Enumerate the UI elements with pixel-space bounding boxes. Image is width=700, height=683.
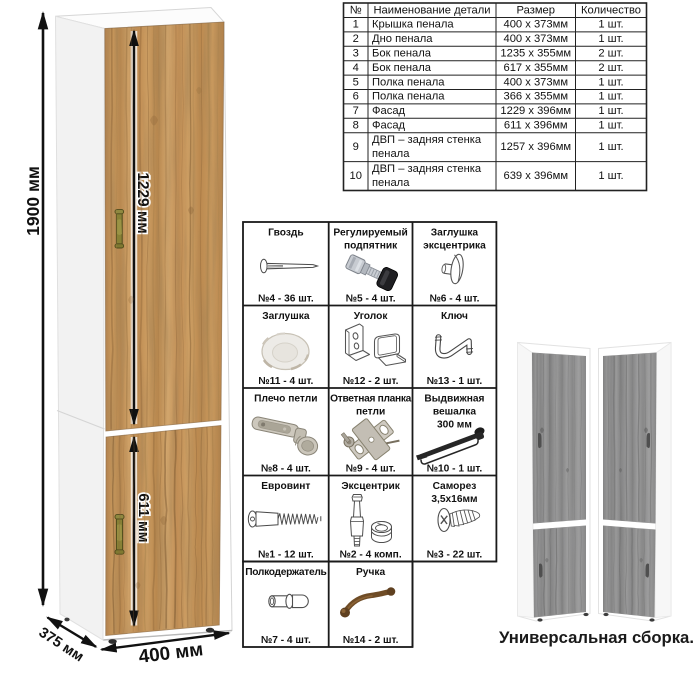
svg-text:Количество: Количество: [581, 4, 641, 16]
svg-text:№4 - 36 шт.: №4 - 36 шт.: [258, 294, 314, 305]
svg-text:№7 - 4 шт.: №7 - 4 шт.: [261, 635, 311, 646]
svg-text:1 шт.: 1 шт.: [598, 33, 623, 45]
svg-text:эксцентрика: эксцентрика: [423, 241, 486, 252]
svg-text:1 шт.: 1 шт.: [598, 141, 623, 153]
svg-text:3: 3: [353, 48, 359, 60]
svg-text:пенала: пенала: [372, 148, 410, 160]
svg-text:Ответная планка: Ответная планка: [330, 394, 411, 405]
svg-text:10: 10: [350, 170, 362, 182]
svg-text:617 х 355мм: 617 х 355мм: [503, 62, 568, 74]
svg-text:№3 - 22 шт.: №3 - 22 шт.: [427, 550, 483, 561]
svg-text:Евровинт: Евровинт: [261, 481, 310, 492]
svg-text:петли: петли: [356, 407, 385, 418]
svg-text:4: 4: [353, 62, 359, 74]
svg-text:Выдвижная: Выдвижная: [424, 394, 484, 405]
svg-text:Бок пенала: Бок пенала: [372, 48, 432, 60]
svg-text:Ручка: Ручка: [356, 567, 385, 578]
svg-text:1 шт.: 1 шт.: [598, 19, 623, 31]
svg-text:Уголок: Уголок: [354, 311, 389, 322]
svg-text:Полка пенала: Полка пенала: [372, 76, 445, 88]
svg-text:2 шт.: 2 шт.: [598, 48, 623, 60]
svg-text:1235 х 355мм: 1235 х 355мм: [500, 48, 571, 60]
svg-text:подпятник: подпятник: [344, 241, 398, 252]
svg-text:Регулируемый: Регулируемый: [333, 228, 407, 239]
svg-text:Эксцентрик: Эксцентрик: [341, 481, 400, 492]
svg-text:Дно пенала: Дно пенала: [372, 33, 433, 45]
svg-text:639 х 396мм: 639 х 396мм: [503, 170, 568, 182]
svg-text:Фасад: Фасад: [372, 120, 406, 132]
svg-text:9: 9: [353, 141, 359, 153]
svg-text:6: 6: [353, 91, 359, 103]
svg-text:№14 - 2 шт.: №14 - 2 шт.: [343, 635, 399, 646]
svg-text:пенала: пенала: [372, 177, 410, 189]
svg-text:400 х 373мм: 400 х 373мм: [503, 19, 568, 31]
svg-text:Ключ: Ключ: [441, 311, 468, 322]
svg-text:366 х 355мм: 366 х 355мм: [503, 91, 568, 103]
svg-text:1: 1: [353, 19, 359, 31]
svg-text:1229 х 396мм: 1229 х 396мм: [500, 105, 571, 117]
svg-text:вешалка: вешалка: [433, 407, 477, 418]
svg-text:3,5х16мм: 3,5х16мм: [431, 494, 477, 505]
svg-text:Гвоздь: Гвоздь: [268, 228, 304, 239]
svg-text:1900 мм: 1900 мм: [23, 166, 43, 236]
svg-text:2 шт.: 2 шт.: [598, 62, 623, 74]
svg-text:1 шт.: 1 шт.: [598, 105, 623, 117]
svg-text:611 х 396мм: 611 х 396мм: [504, 120, 568, 132]
svg-text:Универсальная сборка.: Универсальная сборка.: [499, 628, 694, 647]
svg-text:№11 - 4 шт.: №11 - 4 шт.: [258, 376, 313, 387]
svg-text:№6 - 4 шт.: №6 - 4 шт.: [429, 294, 479, 305]
svg-text:5: 5: [353, 76, 359, 88]
svg-text:Полка пенала: Полка пенала: [372, 91, 445, 103]
svg-text:№10 - 1 шт.: №10 - 1 шт.: [427, 464, 483, 475]
svg-text:Размер: Размер: [517, 4, 555, 16]
svg-text:Фасад: Фасад: [372, 105, 406, 117]
svg-text:8: 8: [353, 120, 359, 132]
svg-text:Заглушка: Заглушка: [431, 228, 479, 239]
svg-text:№9 - 4 шт.: №9 - 4 шт.: [346, 464, 396, 475]
svg-text:7: 7: [353, 105, 359, 117]
svg-text:№13 - 1 шт.: №13 - 1 шт.: [427, 376, 483, 387]
svg-text:1 шт.: 1 шт.: [598, 170, 623, 182]
svg-text:400 х 373мм: 400 х 373мм: [503, 76, 568, 88]
svg-text:300 мм: 300 мм: [437, 420, 472, 431]
svg-text:Бок пенала: Бок пенала: [372, 62, 432, 74]
svg-text:Заглушка: Заглушка: [262, 311, 310, 322]
svg-text:№: №: [350, 4, 362, 16]
svg-text:№1 - 12 шт.: №1 - 12 шт.: [258, 550, 314, 561]
svg-text:№5 - 4 шт.: №5 - 4 шт.: [346, 294, 396, 305]
svg-text:ДВП – задняя стенка: ДВП – задняя стенка: [372, 134, 482, 146]
svg-text:№2 - 4 комп.: №2 - 4 комп.: [340, 550, 402, 561]
svg-text:Полкодержатель: Полкодержатель: [245, 567, 326, 578]
svg-text:Саморез: Саморез: [433, 481, 477, 492]
svg-text:№8 - 4 шт.: №8 - 4 шт.: [261, 464, 311, 475]
svg-text:400 х 373мм: 400 х 373мм: [503, 33, 568, 45]
svg-text:№12 - 2 шт.: №12 - 2 шт.: [343, 376, 399, 387]
svg-text:Наименование детали: Наименование детали: [373, 4, 490, 16]
svg-text:ДВП – задняя стенка: ДВП – задняя стенка: [372, 163, 482, 175]
svg-text:2: 2: [353, 33, 359, 45]
svg-text:1257 х 396мм: 1257 х 396мм: [500, 141, 571, 153]
svg-text:1 шт.: 1 шт.: [598, 76, 623, 88]
svg-text:1 шт.: 1 шт.: [598, 120, 623, 132]
svg-text:375 мм: 375 мм: [36, 625, 87, 666]
svg-text:Крышка пенала: Крышка пенала: [372, 19, 454, 31]
svg-text:Плечо петли: Плечо петли: [254, 394, 317, 405]
svg-text:1 шт.: 1 шт.: [598, 91, 623, 103]
